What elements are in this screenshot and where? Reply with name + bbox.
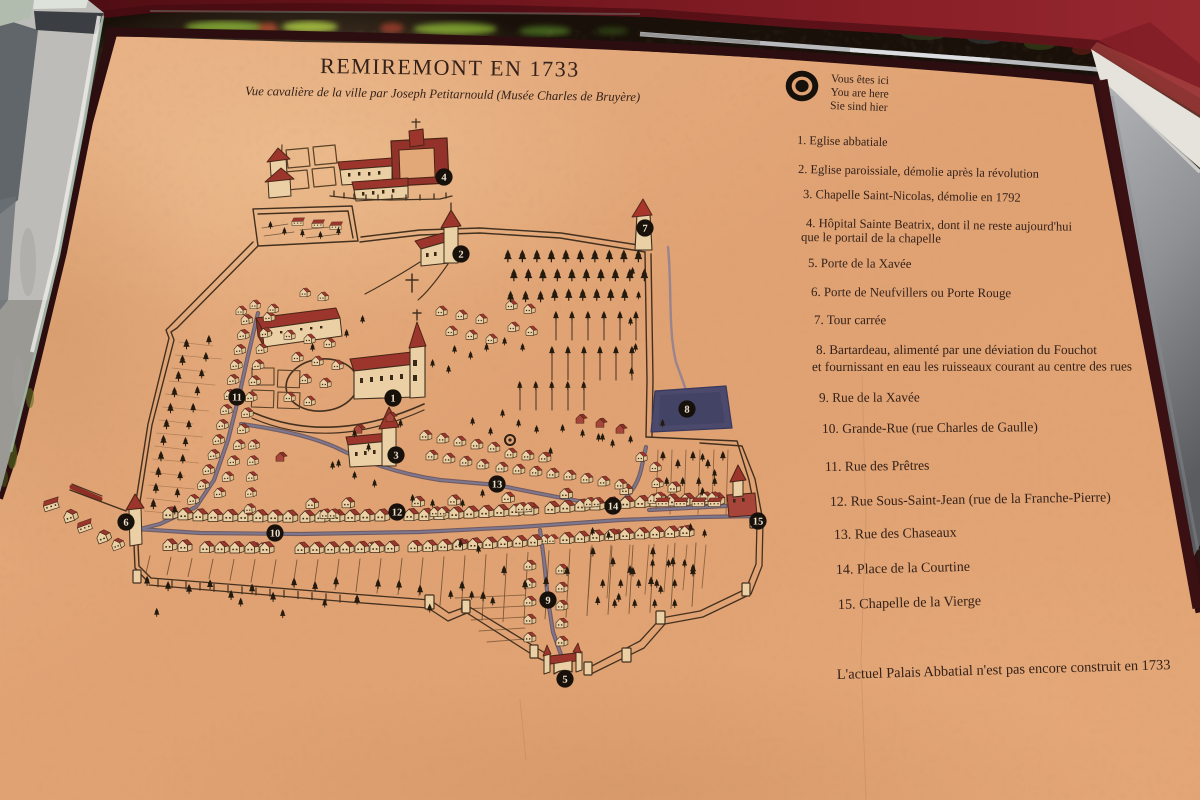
svg-text:10. Grande-Rue (rue Charles de: 10. Grande-Rue (rue Charles de Gaulle) xyxy=(822,419,1038,436)
svg-text:REMIREMONT EN 1733: REMIREMONT EN 1733 xyxy=(320,53,580,82)
svg-text:4: 4 xyxy=(441,173,447,184)
svg-text:2: 2 xyxy=(458,250,463,261)
svg-text:7: 7 xyxy=(642,224,647,235)
svg-text:8: 8 xyxy=(684,405,689,416)
svg-text:et fournissant en eau les ruis: et fournissant en eau les ruisseaux cour… xyxy=(812,358,1132,374)
svg-text:11. Rue des Prêtres: 11. Rue des Prêtres xyxy=(825,458,930,474)
svg-text:Vous êtes ici: Vous êtes ici xyxy=(831,73,889,87)
svg-text:1. Eglise abbatiale: 1. Eglise abbatiale xyxy=(797,133,888,149)
svg-text:1: 1 xyxy=(390,394,395,405)
svg-text:3: 3 xyxy=(393,451,398,462)
svg-text:You are here: You are here xyxy=(830,87,889,101)
svg-text:8. Bartardeau, alimenté par un: 8. Bartardeau, alimenté par une déviatio… xyxy=(816,342,1097,357)
svg-text:9: 9 xyxy=(545,596,550,607)
svg-text:5. Porte de la Xavée: 5. Porte de la Xavée xyxy=(808,256,912,271)
svg-text:Sie sind hier: Sie sind hier xyxy=(830,100,888,114)
svg-text:15: 15 xyxy=(753,517,764,528)
svg-text:que le portail de la chapelle: que le portail de la chapelle xyxy=(801,230,941,246)
svg-text:6. Porte de Neufvillers ou Por: 6. Porte de Neufvillers ou Porte Rouge xyxy=(811,285,1011,300)
svg-text:7. Tour carrée: 7. Tour carrée xyxy=(814,312,886,327)
svg-text:14. Place de la Courtine: 14. Place de la Courtine xyxy=(836,560,970,578)
svg-text:6: 6 xyxy=(123,518,128,529)
svg-text:12: 12 xyxy=(392,508,403,519)
svg-text:10: 10 xyxy=(270,529,281,540)
svg-text:5: 5 xyxy=(562,675,567,686)
svg-text:11: 11 xyxy=(232,393,242,404)
svg-text:9. Rue de la Xavée: 9. Rue de la Xavée xyxy=(819,389,920,405)
svg-text:13. Rue des Chaseaux: 13. Rue des Chaseaux xyxy=(834,526,957,543)
svg-text:13: 13 xyxy=(492,480,503,491)
svg-text:14: 14 xyxy=(608,502,619,513)
